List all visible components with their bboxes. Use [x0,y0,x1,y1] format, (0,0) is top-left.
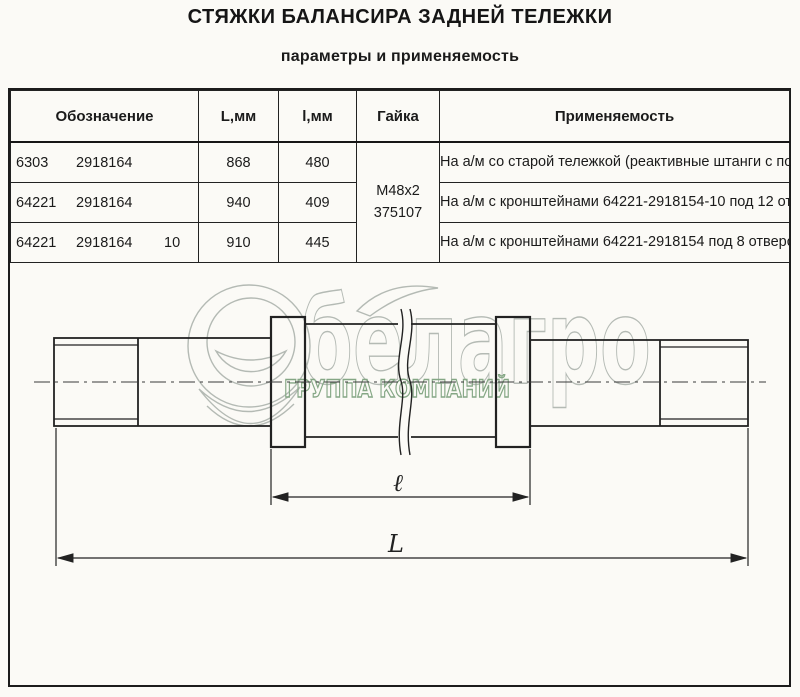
designation-number: 2918164 [76,235,164,251]
length-l-value: 409 [279,183,357,223]
dim-l-label: ℓ [393,469,403,497]
length-l-value: 480 [279,142,357,183]
col-header-nut: Гайка [357,91,440,143]
application-cell: На а/м со старой тележкой (реактивные шт… [440,142,790,183]
parameters-table: Обозначение L,мм l,мм Гайка Применяемост… [10,90,790,263]
watermark: белагро ГРУППА КОМПАНИЙ [188,273,651,426]
length-L-value: 910 [199,223,279,263]
designation-number: 2918164 [76,195,164,211]
designation-number: 2918164 [76,155,164,171]
designation-prefix: 64221 [16,235,76,251]
designation-cell: 6303 2918164 [11,142,199,183]
dim-L-label: L [387,530,404,558]
nut-part-number: 375107 [357,203,439,224]
technical-drawing: белагро ГРУППА КОМПАНИЙ [10,263,789,683]
document-frame: Обозначение L,мм l,мм Гайка Применяемост… [8,88,791,687]
designation-prefix: 6303 [16,155,76,171]
designation-cell: 64221 2918164 10 [11,223,199,263]
page-title: СТЯЖКИ БАЛАНСИРА ЗАДНЕЙ ТЕЛЕЖКИ [0,6,800,29]
designation-suffix: 10 [164,235,180,251]
nut-thread: M48x2 [357,181,439,202]
col-header-length-L: L,мм [199,91,279,143]
designation-cell: 64221 2918164 [11,183,199,223]
page-subtitle: параметры и применяемость [0,48,800,66]
col-header-length-l: l,мм [279,91,357,143]
application-cell: На а/м с кронштейнами 64221-2918154-10 п… [440,183,790,223]
length-L-value: 940 [199,183,279,223]
application-cell: На а/м с кронштейнами 64221-2918154 под … [440,223,790,263]
table-row: 6303 2918164 868 480 M48x2 375107 На а/м… [11,142,790,183]
col-header-application: Применяемость [440,91,790,143]
length-L-value: 868 [199,142,279,183]
nut-cell: M48x2 375107 [357,142,440,263]
col-header-designation: Обозначение [11,91,199,143]
table-header-row: Обозначение L,мм l,мм Гайка Применяемост… [11,91,790,143]
watermark-tagline: ГРУППА КОМПАНИЙ [284,374,510,403]
tie-rod-drawing: белагро ГРУППА КОМПАНИЙ [10,263,789,683]
length-l-value: 445 [279,223,357,263]
designation-prefix: 64221 [16,195,76,211]
